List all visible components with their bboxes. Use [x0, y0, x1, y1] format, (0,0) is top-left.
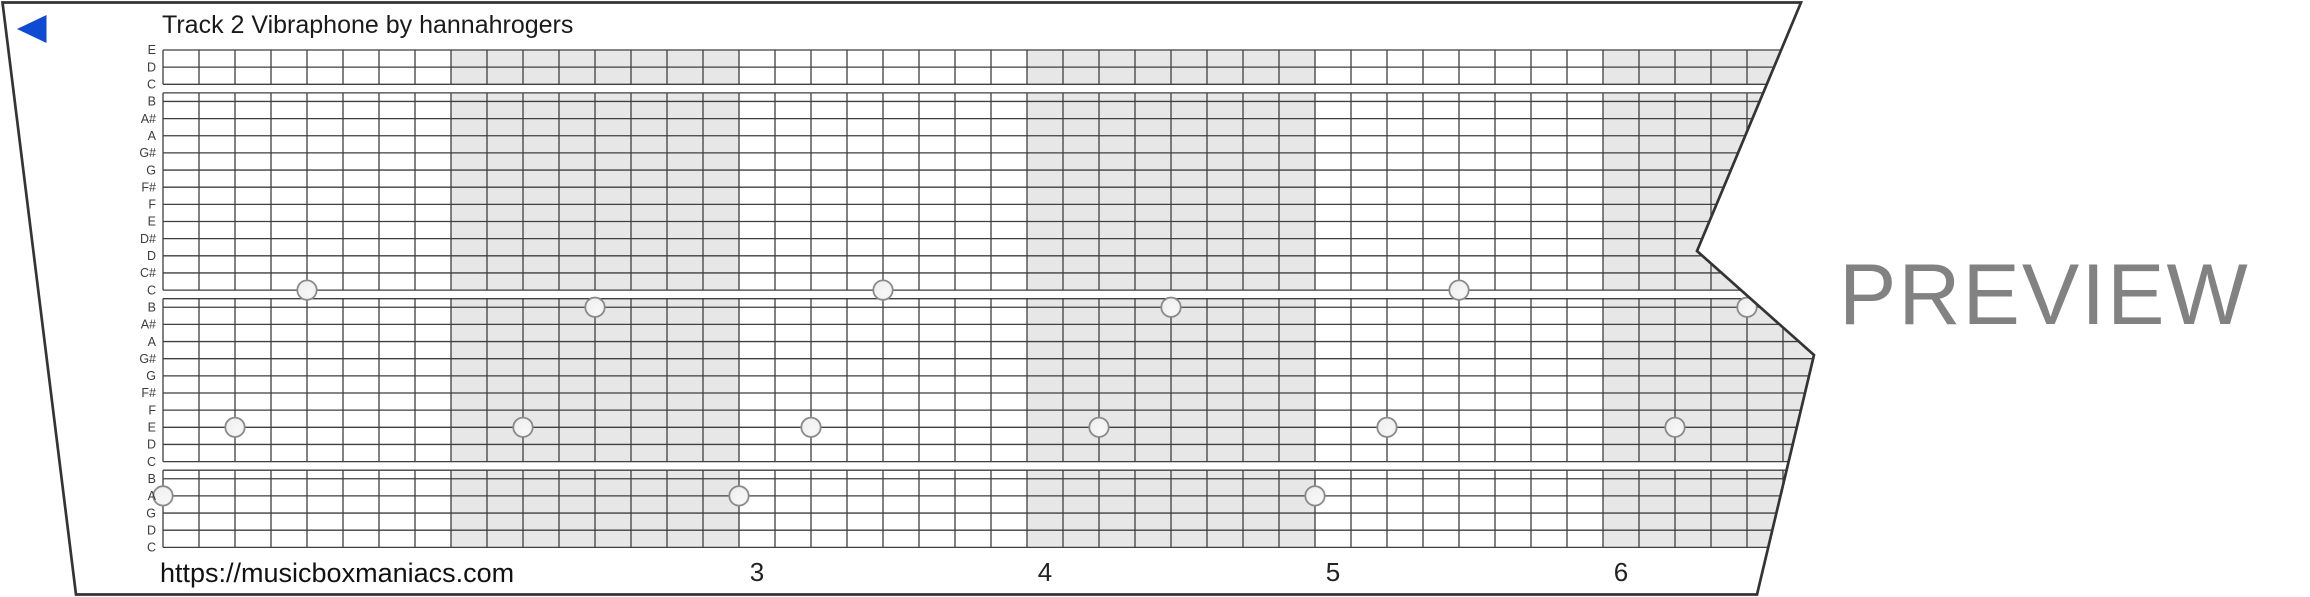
- row-label: A: [148, 129, 157, 143]
- row-label: F#: [141, 386, 156, 400]
- row-label: F: [148, 403, 156, 417]
- note-hole[interactable]: [801, 418, 820, 437]
- measure-number: 5: [1326, 557, 1340, 587]
- note-hole[interactable]: [1305, 486, 1324, 505]
- row-label: D: [147, 249, 156, 263]
- note-hole[interactable]: [1377, 418, 1396, 437]
- preview-watermark: PREVIEW: [1839, 252, 2250, 338]
- strip-title: Track 2 Vibraphone by hannahrogers: [162, 11, 573, 39]
- note-hole[interactable]: [297, 280, 316, 299]
- measure-number: 3: [750, 557, 764, 587]
- note-hole[interactable]: [873, 280, 892, 299]
- row-label: C: [147, 541, 156, 555]
- row-label: B: [148, 472, 156, 486]
- note-hole[interactable]: [1665, 418, 1684, 437]
- note-hole[interactable]: [1089, 418, 1108, 437]
- row-label: C: [147, 78, 156, 92]
- row-label: C: [147, 283, 156, 297]
- site-url-link[interactable]: https://musicboxmaniacs.com: [160, 558, 514, 588]
- note-hole[interactable]: [513, 418, 532, 437]
- row-label: G: [146, 506, 156, 520]
- row-label: F: [148, 198, 156, 212]
- row-label: C: [147, 455, 156, 469]
- row-label: G: [146, 163, 156, 177]
- row-label: B: [148, 95, 156, 109]
- row-label: B: [148, 300, 156, 314]
- row-label: G#: [139, 352, 156, 366]
- note-hole[interactable]: [1449, 280, 1468, 299]
- music-box-preview-stage: EDCBA#AG#GF#FED#DC#CBA#AG#GF#FEDCBAGDC34…: [0, 0, 2310, 597]
- row-label: G#: [139, 146, 156, 160]
- row-label: E: [148, 43, 156, 57]
- row-label: D#: [140, 232, 156, 246]
- row-label: A#: [141, 318, 156, 332]
- row-label: D: [147, 60, 156, 74]
- row-label: F#: [141, 180, 156, 194]
- note-hole[interactable]: [153, 486, 172, 505]
- row-label: D: [147, 523, 156, 537]
- note-hole[interactable]: [729, 486, 748, 505]
- row-label: A: [148, 489, 157, 503]
- measure-number: 6: [1614, 557, 1628, 587]
- row-label: E: [148, 215, 156, 229]
- note-hole[interactable]: [225, 418, 244, 437]
- measure-number: 4: [1038, 557, 1052, 587]
- note-hole[interactable]: [1161, 298, 1180, 317]
- note-hole[interactable]: [585, 298, 604, 317]
- row-label: D: [147, 438, 156, 452]
- row-label: C#: [140, 266, 156, 280]
- row-label: A: [148, 335, 157, 349]
- row-label: A#: [141, 112, 156, 126]
- row-label: G: [146, 369, 156, 383]
- row-label: E: [148, 421, 156, 435]
